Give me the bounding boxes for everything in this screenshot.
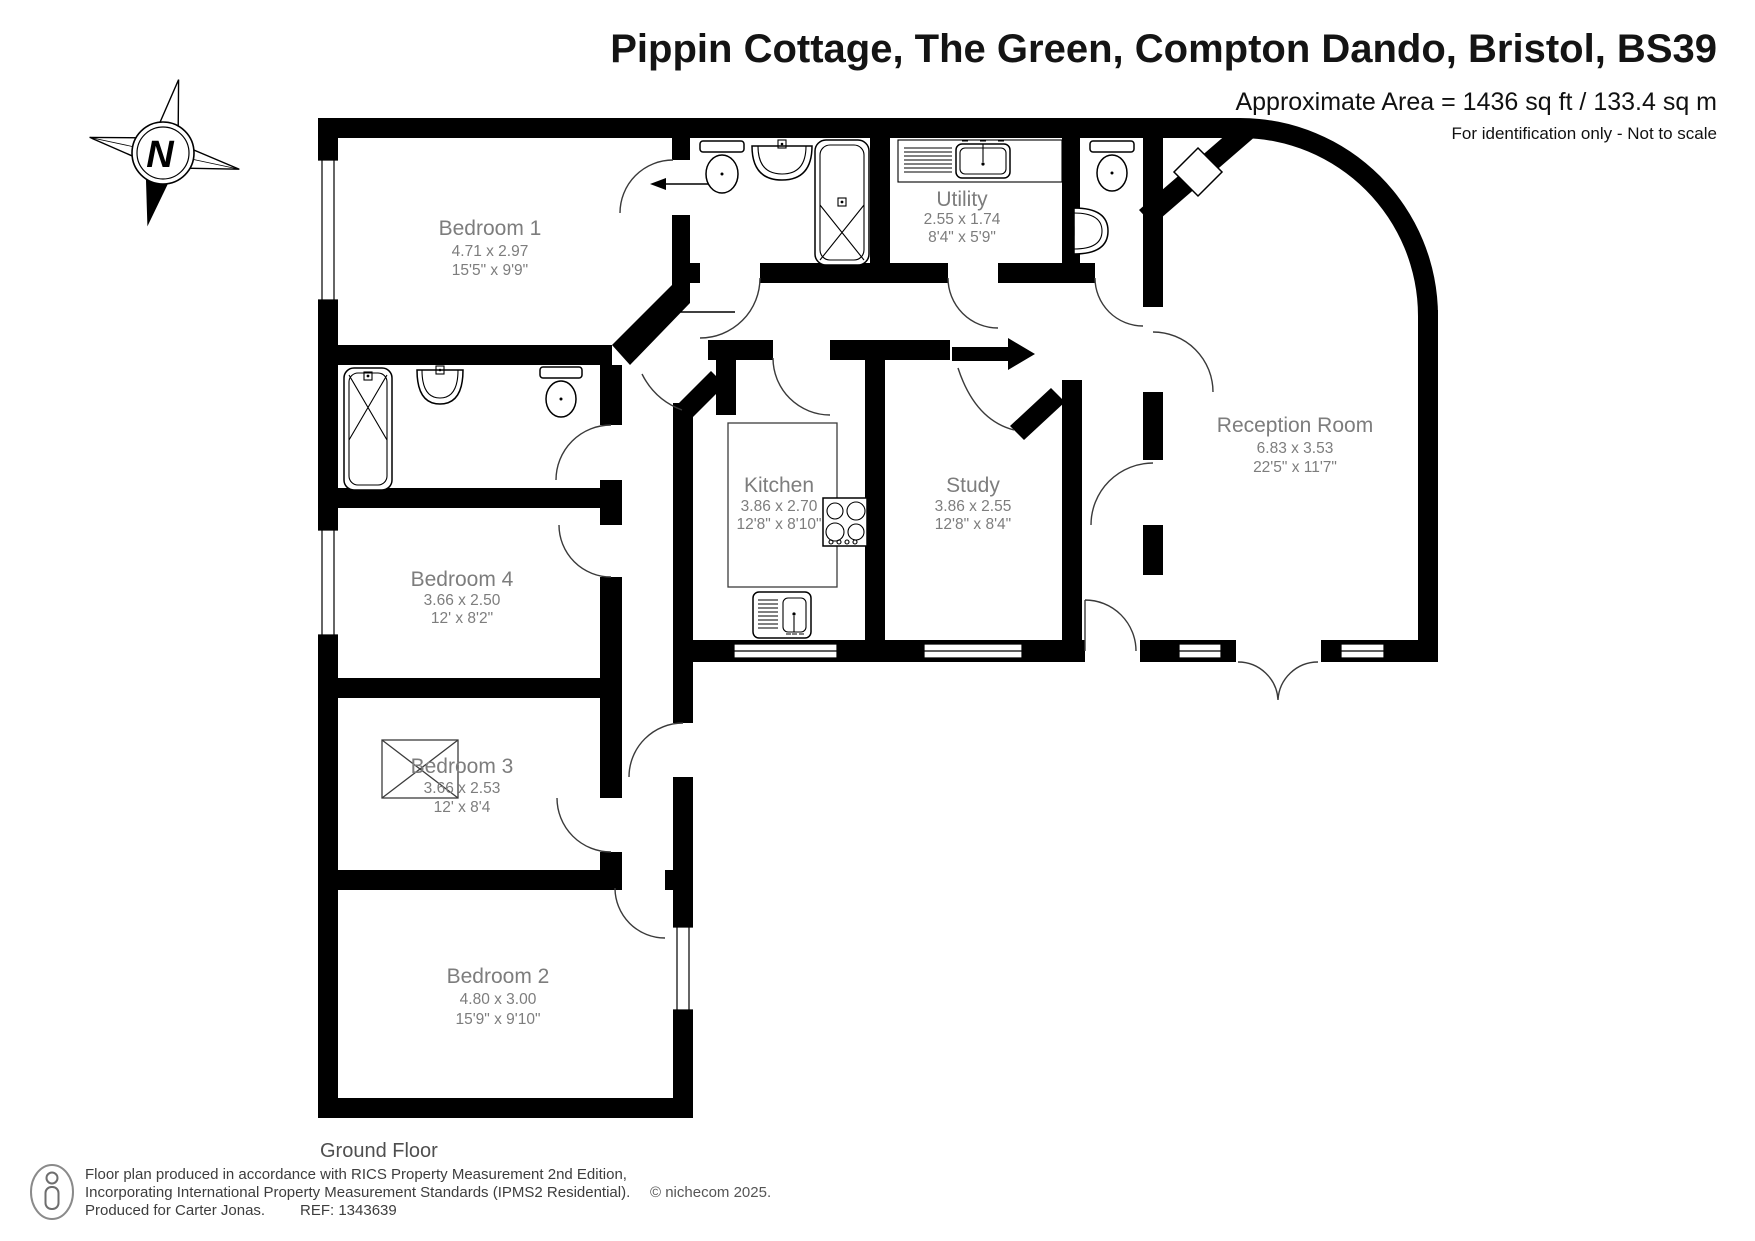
window-study xyxy=(924,644,1022,658)
room-imperial: 12'8" x 8'4" xyxy=(935,516,1011,533)
door-swing-arc xyxy=(556,425,611,480)
room-imperial: 12' x 8'4 xyxy=(434,799,491,816)
ground-floor-label: Ground Floor xyxy=(320,1140,438,1162)
door-swing-arc xyxy=(615,888,665,938)
room-metric: 6.83 x 3.53 xyxy=(1257,440,1334,457)
hob-icon xyxy=(823,498,867,546)
room-metric: 3.86 x 2.55 xyxy=(935,498,1012,515)
room-name: Bedroom 2 xyxy=(447,965,550,988)
room-metric: 3.66 x 2.53 xyxy=(424,780,501,797)
door-swing-arc xyxy=(1091,463,1153,525)
room-name: Bedroom 4 xyxy=(411,568,514,591)
door-swing-arc xyxy=(557,798,611,852)
person-logo-icon xyxy=(31,1165,73,1219)
room-imperial: 15'5" x 9'9" xyxy=(452,262,528,279)
room-name: Utility xyxy=(936,188,988,211)
room-metric: 3.86 x 2.70 xyxy=(741,498,818,515)
footer-produced-for: Produced for Carter Jonas. xyxy=(85,1202,265,1219)
room-metric: 3.66 x 2.50 xyxy=(424,592,501,609)
room-name: Kitchen xyxy=(744,474,814,497)
room-label-reception-room: Reception Room 6.83 x 3.53 22'5" x 11'7" xyxy=(1217,414,1373,476)
study-door-leaf xyxy=(1010,388,1065,440)
footer-line-2: Incorporating International Property Mea… xyxy=(85,1184,630,1201)
room-label-bedroom-2: Bedroom 2 4.80 x 3.00 15'9" x 9'10" xyxy=(447,965,550,1028)
room-imperial: 22'5" x 11'7" xyxy=(1253,459,1337,476)
floorplan-page: Pippin Cottage, The Green, Compton Dando… xyxy=(0,0,1755,1241)
floor-plan-canvas: Pippin Cottage, The Green, Compton Dando… xyxy=(0,0,1755,1241)
window-reception-left xyxy=(1179,644,1221,658)
door-swing-arc xyxy=(1095,278,1143,326)
room-name: Study xyxy=(946,474,1000,497)
room-imperial: 12' x 8'2" xyxy=(431,610,493,627)
door-swing-arc xyxy=(948,278,998,328)
utility-sink-icon xyxy=(898,140,1062,182)
bathtub-icon xyxy=(344,368,392,490)
approximate-area: Approximate Area = 1436 sq ft / 133.4 sq… xyxy=(1235,88,1717,116)
window-bedroom2 xyxy=(673,927,693,1010)
footer-line-1: Floor plan produced in accordance with R… xyxy=(85,1166,627,1183)
door-swing-arc xyxy=(629,723,683,777)
room-label-kitchen: Kitchen 3.86 x 2.70 12'8" x 8'10" xyxy=(736,474,821,533)
sink-icon xyxy=(752,140,812,180)
sink-icon xyxy=(417,366,463,404)
window-bedroom1 xyxy=(318,160,338,300)
footer-reference: REF: 1343639 xyxy=(300,1202,397,1219)
toilet-icon xyxy=(1090,141,1134,191)
main-entrance-arrow-icon xyxy=(952,338,1035,370)
entrance-door-swing xyxy=(1085,600,1136,651)
room-name: Reception Room xyxy=(1217,414,1373,437)
window-kitchen xyxy=(734,644,837,658)
toilet-icon xyxy=(540,367,582,417)
room-label-study: Study 3.86 x 2.55 12'8" x 8'4" xyxy=(935,474,1012,533)
room-metric: 4.71 x 2.97 xyxy=(452,243,529,260)
window-reception-right xyxy=(1341,644,1384,658)
door-swing-arc xyxy=(773,358,830,415)
entry-arrow-icon xyxy=(656,306,735,318)
footer-copyright: © nichecom 2025. xyxy=(650,1184,771,1201)
door-swing-arc xyxy=(559,525,611,577)
room-labels: Bedroom 1 4.71 x 2.97 15'5" x 9'9" Utili… xyxy=(411,188,1374,1028)
room-name: Bedroom 3 xyxy=(411,755,514,778)
footer: Floor plan produced in accordance with R… xyxy=(31,1165,771,1219)
door-swing-arc xyxy=(1153,332,1213,392)
door-swing-arc xyxy=(700,278,760,338)
window-bedroom4 xyxy=(318,530,338,635)
kitchen-sink-icon xyxy=(753,592,811,638)
room-label-bedroom-3: Bedroom 3 3.66 x 2.53 12' x 8'4 xyxy=(411,755,514,816)
toilet-icon xyxy=(700,141,744,193)
room-metric: 2.55 x 1.74 xyxy=(924,211,1001,228)
room-name: Bedroom 1 xyxy=(439,217,542,240)
compass-north-label: N xyxy=(146,134,175,176)
compass-icon: N xyxy=(74,64,255,243)
room-label-bedroom-1: Bedroom 1 4.71 x 2.97 15'5" x 9'9" xyxy=(439,217,542,279)
room-imperial: 15'9" x 9'10" xyxy=(455,1011,540,1028)
room-label-utility: Utility 2.55 x 1.74 8'4" x 5'9" xyxy=(924,188,1001,246)
room-label-bedroom-4: Bedroom 4 3.66 x 2.50 12' x 8'2" xyxy=(411,568,514,627)
room-metric: 4.80 x 3.00 xyxy=(460,991,537,1008)
room-imperial: 8'4" x 5'9" xyxy=(928,229,996,246)
french-doors-swing xyxy=(1238,662,1318,700)
bathtub-icon xyxy=(815,140,869,265)
property-title: Pippin Cottage, The Green, Compton Dando… xyxy=(610,27,1717,71)
room-imperial: 12'8" x 8'10" xyxy=(736,516,821,533)
door-swing-arc xyxy=(958,368,1014,430)
entry-arrow-icon xyxy=(650,178,712,190)
scale-disclaimer: For identification only - Not to scale xyxy=(1451,124,1717,143)
